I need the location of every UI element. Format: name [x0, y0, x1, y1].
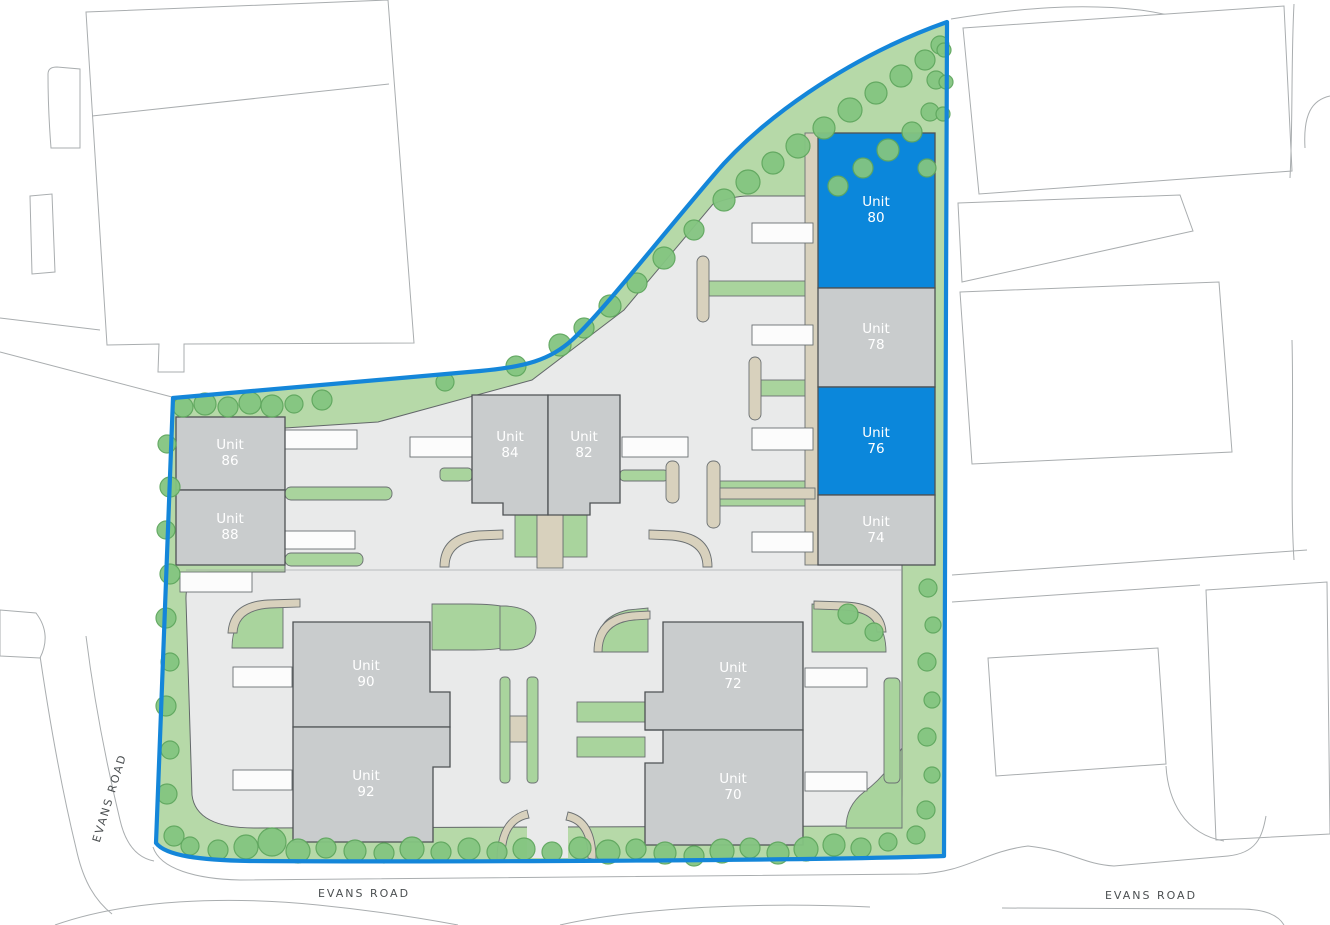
tree-icon — [877, 139, 899, 161]
context-building-right-2 — [958, 195, 1193, 282]
tree-icon — [917, 801, 935, 819]
parking-bay — [805, 772, 867, 791]
tree-icon — [762, 152, 784, 174]
unit-88-label: Unit — [216, 511, 243, 527]
context-kerb-west-road-2 — [38, 642, 112, 914]
unit-70-label: Unit — [719, 771, 746, 787]
tree-icon — [924, 767, 940, 783]
tree-icon — [865, 82, 887, 104]
landscape-strip — [884, 678, 900, 783]
footpath-strip — [749, 357, 761, 420]
tree-icon — [400, 837, 424, 861]
tree-icon — [890, 65, 912, 87]
parking-bay — [805, 668, 867, 687]
landscape-strip — [709, 281, 815, 296]
tree-icon — [487, 842, 507, 862]
tree-icon — [653, 247, 675, 269]
tree-icon — [513, 838, 535, 860]
unit-92-label: Unit — [352, 768, 379, 784]
unit-78-label: Unit — [862, 321, 889, 337]
site-plan: Unit 80 Unit 78 Unit 76 Unit 74 Unit 86 … — [0, 0, 1330, 925]
tree-icon — [258, 828, 286, 856]
unit-88-number: 88 — [221, 527, 238, 543]
landscape-strip — [577, 702, 645, 722]
context-kerb-east-1 — [1290, 4, 1294, 178]
landscape-strip — [285, 553, 363, 566]
parking-bay — [410, 437, 472, 457]
context-island-west — [0, 610, 45, 658]
tree-icon — [838, 98, 862, 122]
tree-icon — [918, 728, 936, 746]
context-structure-small-1 — [48, 67, 80, 148]
unit-80-label: Unit — [862, 194, 889, 210]
road-label-evans-southeast: EVANS ROAD — [1105, 889, 1197, 902]
tree-icon — [684, 220, 704, 240]
tree-icon — [786, 134, 810, 158]
tree-icon — [316, 838, 336, 858]
parking-bay — [180, 572, 252, 592]
unit-76-label: Unit — [862, 425, 889, 441]
landscape-strip — [527, 677, 538, 783]
tree-icon — [181, 837, 199, 855]
landscape-strip — [440, 468, 472, 481]
landscape-strip — [577, 737, 645, 757]
parking-bay — [752, 325, 813, 345]
parking-bay — [752, 428, 813, 450]
tree-icon — [713, 189, 735, 211]
unit-84-label: Unit — [496, 429, 523, 445]
unit-84-number: 84 — [501, 445, 518, 461]
unit-70-number: 70 — [724, 787, 741, 803]
tree-icon — [208, 840, 228, 860]
context-kerb-east-3 — [1292, 340, 1294, 560]
footpath-strip — [707, 461, 720, 528]
tree-icon — [879, 833, 897, 851]
unit-72-number: 72 — [724, 676, 741, 692]
context-building-right-1 — [963, 6, 1292, 194]
unit-82-number: 82 — [575, 445, 592, 461]
landscape-strip — [620, 470, 668, 481]
landscape-strip — [563, 514, 587, 557]
tree-icon — [431, 842, 451, 862]
parking-bay — [622, 437, 688, 457]
context-kerb-west-2 — [0, 318, 100, 330]
context-building-southeast-2 — [1206, 582, 1330, 840]
tree-icon — [919, 579, 937, 597]
context-structure-small-2 — [30, 194, 55, 274]
context-kerb-south-1 — [55, 900, 458, 925]
tree-icon — [218, 397, 238, 417]
context-kerb-west-1 — [0, 352, 172, 397]
tree-icon — [838, 604, 858, 624]
footpath-strip — [697, 256, 709, 322]
tree-icon — [740, 838, 760, 858]
context-kerb-east-2 — [1305, 96, 1330, 148]
tree-icon — [924, 692, 940, 708]
unit-80-number: 80 — [867, 210, 884, 226]
unit-74-number: 74 — [867, 530, 884, 546]
unit-82-label: Unit — [570, 429, 597, 445]
unit-92-number: 92 — [357, 784, 374, 800]
unit-90-number: 90 — [357, 674, 374, 690]
footpath-strip — [537, 514, 563, 568]
context-kerb-southeast-1 — [952, 550, 1307, 575]
tree-icon — [813, 117, 835, 139]
tree-icon — [853, 158, 873, 178]
tree-icon — [684, 846, 704, 866]
unit-90-label: Unit — [352, 658, 379, 674]
footpath-strip — [805, 133, 818, 565]
landscape-strip — [515, 514, 537, 557]
parking-bay — [285, 430, 357, 449]
unit-86-label: Unit — [216, 437, 243, 453]
tree-icon — [344, 840, 366, 862]
landscape-strip — [500, 677, 510, 783]
landscape-strip — [285, 487, 392, 500]
footpath-strip — [720, 488, 815, 499]
tree-icon — [160, 564, 180, 584]
context-building-right-3 — [960, 282, 1232, 464]
unit-74-label: Unit — [862, 514, 889, 530]
tree-icon — [569, 837, 591, 859]
tree-icon — [312, 390, 332, 410]
tree-icon — [851, 838, 871, 858]
context-kerb-south-3 — [1002, 908, 1284, 925]
context-kerb-south-2 — [560, 905, 870, 925]
tree-icon — [458, 838, 480, 860]
tree-icon — [261, 395, 283, 417]
tree-icon — [907, 826, 925, 844]
parking-bay — [752, 223, 813, 243]
tree-icon — [823, 834, 845, 856]
tree-icon — [736, 170, 760, 194]
tree-icon — [918, 653, 936, 671]
tree-icon — [865, 623, 883, 641]
context-kerb-southeast-2 — [952, 585, 1200, 602]
road-label-evans-west: EVANS ROAD — [90, 752, 129, 844]
tree-icon — [161, 741, 179, 759]
unit-72-label: Unit — [719, 660, 746, 676]
tree-icon — [918, 159, 936, 177]
context-building-top-left — [86, 0, 414, 372]
parking-bay — [752, 532, 813, 552]
unit-78-number: 78 — [867, 337, 884, 353]
unit-76-number: 76 — [867, 441, 884, 457]
tree-icon — [234, 835, 258, 859]
tree-icon — [285, 395, 303, 413]
tree-icon — [828, 176, 848, 196]
tree-icon — [925, 617, 941, 633]
tree-icon — [626, 839, 646, 859]
parking-bay — [233, 770, 292, 790]
unit-86-number: 86 — [221, 453, 238, 469]
parking-bay — [285, 531, 355, 549]
context-building-southeast-1 — [988, 648, 1166, 776]
tree-icon — [239, 392, 261, 414]
parking-bay — [233, 667, 292, 687]
footpath-strip — [666, 461, 679, 503]
footpath-strip — [510, 716, 527, 742]
road-label-evans-south: EVANS ROAD — [318, 887, 410, 900]
tree-icon — [902, 122, 922, 142]
tree-icon — [173, 397, 193, 417]
tree-icon — [915, 50, 935, 70]
